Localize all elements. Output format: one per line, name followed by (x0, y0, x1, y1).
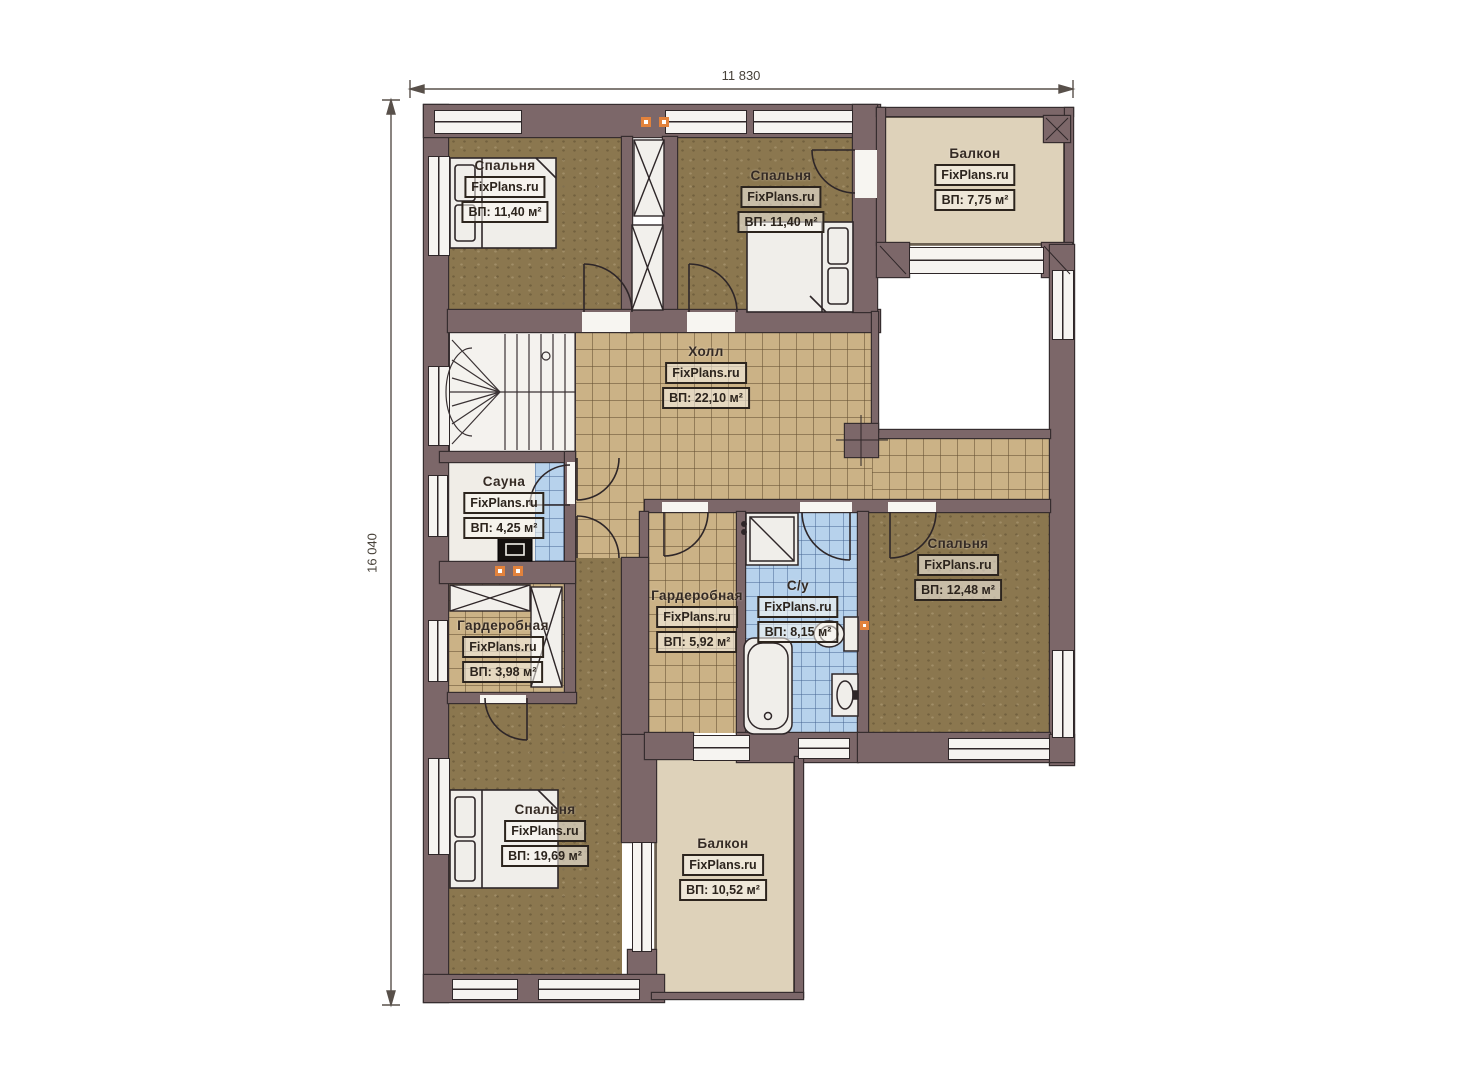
sauna-stove (498, 538, 532, 561)
shower (742, 513, 798, 565)
column-ticks (836, 118, 1070, 466)
floor-plan-canvas: Спальня FixPlans.ru ВП: 11,40 м² Спальня… (0, 0, 1473, 1080)
bed-bottom-left (450, 790, 558, 888)
sink (832, 674, 858, 716)
dimension-width: 11 830 (722, 68, 761, 83)
bed-top-left (450, 158, 556, 248)
bathtub (744, 638, 792, 734)
fixtures-layer (0, 0, 1473, 1080)
staircase (446, 332, 575, 452)
dimension-height: 16 040 (365, 533, 380, 573)
bed-top-mid (747, 222, 853, 312)
toilet (814, 617, 858, 651)
